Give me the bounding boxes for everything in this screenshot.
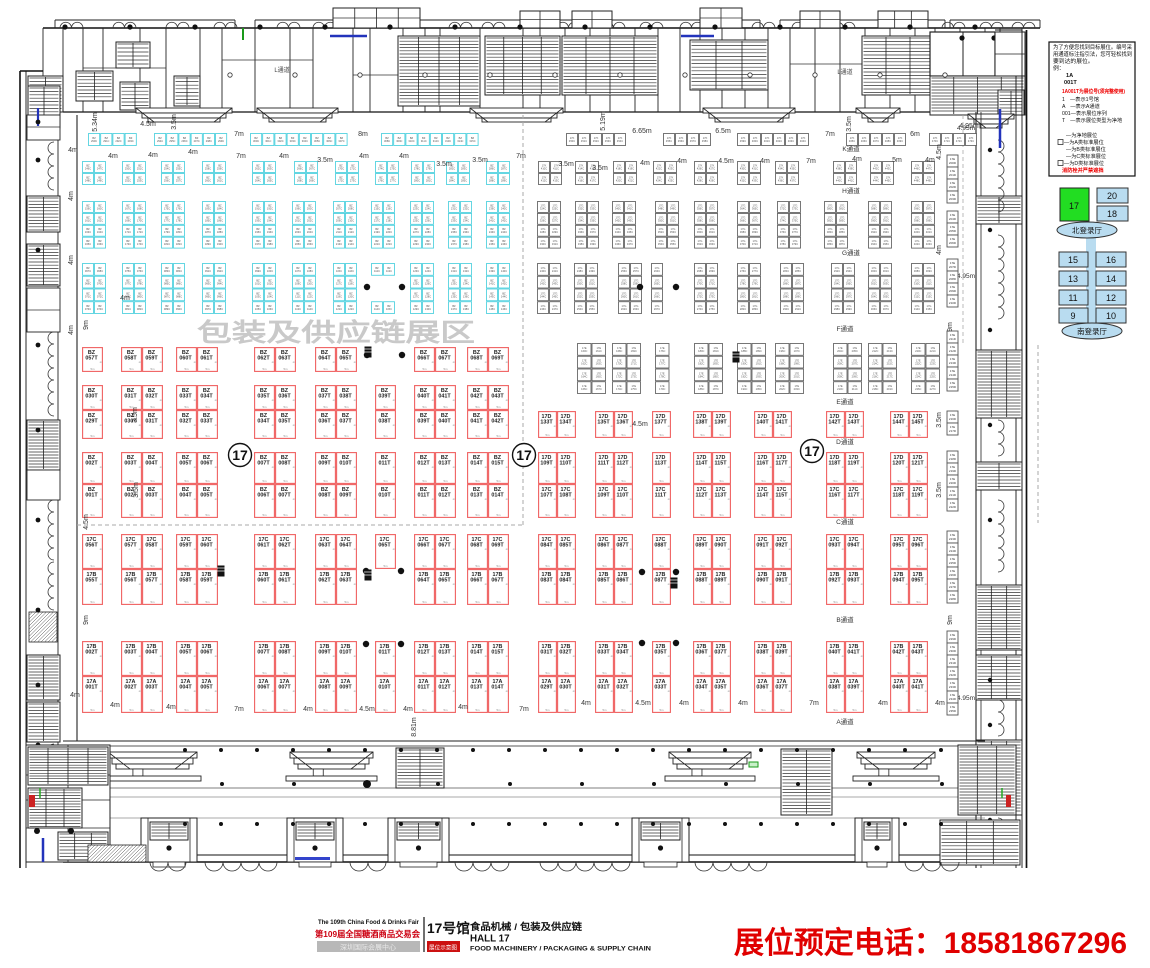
svg-text:129C: 129C <box>413 307 419 311</box>
svg-text:285C: 285C <box>795 269 801 273</box>
svg-text:270C: 270C <box>697 282 703 286</box>
svg-text:121C: 121C <box>336 307 342 311</box>
svg-text:5m: 5m <box>660 433 665 437</box>
svg-text:220C: 220C <box>915 349 921 353</box>
svg-text:5m: 5m <box>185 405 190 409</box>
svg-text:—为D类标准展位: —为D类标准展位 <box>1064 159 1104 167</box>
svg-text:193C: 193C <box>756 374 762 378</box>
svg-text:099C: 099C <box>255 269 261 273</box>
svg-text:114T: 114T <box>696 460 709 466</box>
svg-text:5m: 5m <box>701 708 706 712</box>
svg-text:4m: 4m <box>935 700 945 707</box>
svg-text:315C: 315C <box>926 307 932 311</box>
svg-text:063T: 063T <box>318 542 331 548</box>
svg-text:311C: 311C <box>421 139 427 143</box>
svg-text:337C: 337C <box>590 230 596 234</box>
svg-text:436C: 436C <box>778 178 784 182</box>
svg-text:413C: 413C <box>553 178 559 182</box>
svg-text:239C: 239C <box>489 206 495 210</box>
svg-text:197C: 197C <box>794 349 800 353</box>
svg-text:426C: 426C <box>697 166 703 170</box>
svg-text:308C: 308C <box>384 139 390 143</box>
svg-text:113T: 113T <box>715 492 728 498</box>
svg-text:228C: 228C <box>425 230 431 234</box>
svg-text:5m: 5m <box>345 671 350 675</box>
svg-text:142C: 142C <box>501 282 507 286</box>
svg-text:5m: 5m <box>206 708 211 712</box>
svg-text:168C: 168C <box>616 349 622 353</box>
svg-text:067T: 067T <box>491 577 504 583</box>
svg-text:348C: 348C <box>658 206 664 210</box>
svg-text:208C: 208C <box>348 206 354 210</box>
svg-text:350C: 350C <box>658 218 664 222</box>
svg-text:4.5m: 4.5m <box>936 144 943 160</box>
svg-text:278C: 278C <box>414 166 420 170</box>
svg-text:7m: 7m <box>234 131 244 138</box>
svg-text:5m: 5m <box>185 367 190 371</box>
svg-text:096T: 096T <box>911 542 924 548</box>
svg-text:299C: 299C <box>218 139 224 143</box>
svg-text:312C: 312C <box>433 139 439 143</box>
svg-text:5m: 5m <box>444 671 449 675</box>
svg-text:195C: 195C <box>255 230 261 234</box>
svg-text:216D: 216D <box>949 417 957 421</box>
svg-text:015T: 015T <box>491 460 504 466</box>
svg-text:031T: 031T <box>597 684 610 690</box>
svg-text:17: 17 <box>1069 201 1079 211</box>
svg-text:11: 11 <box>1068 293 1077 303</box>
svg-text:176C: 176C <box>659 349 665 353</box>
svg-text:162C: 162C <box>581 362 587 366</box>
svg-text:389C: 389C <box>883 206 889 210</box>
svg-text:167C: 167C <box>125 206 131 210</box>
svg-text:092C: 092C <box>217 269 223 273</box>
svg-text:186C: 186C <box>217 218 223 222</box>
svg-text:355C: 355C <box>670 242 676 246</box>
svg-text:351C: 351C <box>670 218 676 222</box>
svg-text:280C: 280C <box>740 294 746 298</box>
svg-text:013T: 013T <box>470 684 483 690</box>
svg-text:309C: 309C <box>926 269 932 273</box>
svg-text:5m: 5m <box>565 513 570 517</box>
svg-text:270C: 270C <box>338 166 344 170</box>
svg-text:110C: 110C <box>307 282 313 286</box>
svg-text:5m: 5m <box>444 513 449 517</box>
svg-text:096C: 096C <box>217 294 223 298</box>
svg-text:4m: 4m <box>738 700 748 707</box>
svg-text:5m: 5m <box>263 600 268 604</box>
svg-text:082C: 082C <box>137 307 143 311</box>
svg-text:245C: 245C <box>489 242 495 246</box>
svg-text:5m: 5m <box>151 600 156 604</box>
svg-text:5m: 5m <box>91 367 96 371</box>
svg-text:401C: 401C <box>926 230 932 234</box>
svg-text:308C: 308C <box>914 269 920 273</box>
svg-text:464C: 464C <box>800 139 806 143</box>
svg-text:E通道: E通道 <box>836 397 854 406</box>
svg-text:259C: 259C <box>217 166 223 170</box>
svg-text:232D: 232D <box>949 673 957 677</box>
svg-text:—为B类标准展位: —为B类标准展位 <box>1066 145 1106 153</box>
svg-text:5m: 5m <box>185 600 190 604</box>
svg-text:5m: 5m <box>660 600 665 604</box>
svg-text:F通道: F通道 <box>837 324 854 333</box>
svg-text:250C: 250C <box>125 166 131 170</box>
svg-text:375C: 375C <box>792 218 798 222</box>
svg-text:007T: 007T <box>278 684 291 690</box>
svg-text:060T: 060T <box>179 355 192 361</box>
svg-text:5m: 5m <box>622 708 627 712</box>
svg-text:197C: 197C <box>255 242 261 246</box>
svg-text:136C: 136C <box>463 294 469 298</box>
svg-text:5m: 5m <box>853 671 858 675</box>
svg-text:5m: 5m <box>263 405 268 409</box>
svg-text:295C: 295C <box>846 282 852 286</box>
svg-text:449C: 449C <box>926 178 932 182</box>
svg-text:185C: 185C <box>205 218 211 222</box>
svg-text:5m: 5m <box>324 564 329 568</box>
svg-text:5m: 5m <box>284 405 289 409</box>
svg-text:201D: 201D <box>949 173 957 177</box>
svg-text:334C: 334C <box>578 218 584 222</box>
svg-text:460C: 460C <box>752 139 758 143</box>
svg-text:302C: 302C <box>871 282 877 286</box>
svg-text:5m: 5m <box>660 564 665 568</box>
svg-text:5m: 5m <box>384 671 389 675</box>
svg-text:437C: 437C <box>790 178 796 182</box>
svg-text:包装及供应链展区: 包装及供应链展区 <box>197 318 475 347</box>
svg-text:109T: 109T <box>597 492 610 498</box>
svg-text:3.5m: 3.5m <box>132 407 139 423</box>
svg-text:040T: 040T <box>892 684 905 690</box>
svg-text:033T: 033T <box>654 684 667 690</box>
svg-text:173C: 173C <box>631 374 637 378</box>
svg-text:063T: 063T <box>278 355 291 361</box>
svg-text:362C: 362C <box>697 242 703 246</box>
svg-text:274C: 274C <box>697 307 703 311</box>
svg-text:4m: 4m <box>148 152 158 159</box>
svg-text:135T: 135T <box>597 419 610 425</box>
svg-text:5m: 5m <box>622 564 627 568</box>
svg-text:230D: 230D <box>949 649 957 653</box>
svg-text:084T: 084T <box>540 542 553 548</box>
svg-text:064T: 064T <box>339 542 352 548</box>
svg-text:062T: 062T <box>318 577 331 583</box>
svg-text:369C: 369C <box>752 230 758 234</box>
svg-text:5m: 5m <box>263 367 268 371</box>
svg-text:120C: 120C <box>348 294 354 298</box>
svg-text:302C: 302C <box>277 139 283 143</box>
svg-text:200C: 200C <box>779 374 785 378</box>
svg-text:138T: 138T <box>695 419 708 425</box>
svg-text:9m: 9m <box>947 322 954 332</box>
svg-text:059T: 059T <box>179 542 192 548</box>
svg-text:400C: 400C <box>914 230 920 234</box>
svg-text:117T: 117T <box>776 460 789 466</box>
svg-text:5m: 5m <box>622 513 627 517</box>
svg-text:5m: 5m <box>720 600 725 604</box>
svg-text:263C: 263C <box>267 166 273 170</box>
svg-text:264C: 264C <box>255 178 261 182</box>
svg-text:7m: 7m <box>236 153 246 160</box>
svg-text:L通道: L通道 <box>837 68 852 76</box>
svg-text:160C: 160C <box>581 349 587 353</box>
svg-text:207D: 207D <box>949 265 957 269</box>
svg-text:414C: 414C <box>578 166 584 170</box>
svg-text:5m: 5m <box>476 600 481 604</box>
svg-text:084C: 084C <box>176 269 182 273</box>
svg-text:057T: 057T <box>124 542 137 548</box>
svg-text:058T: 058T <box>179 577 192 583</box>
svg-text:377C: 377C <box>792 230 798 234</box>
svg-text:229C: 229C <box>413 242 419 246</box>
svg-text:029T: 029T <box>85 418 98 424</box>
svg-text:—为净地展位: —为净地展位 <box>1066 131 1097 139</box>
svg-text:234C: 234C <box>463 218 469 222</box>
svg-text:5m: 5m <box>565 708 570 712</box>
svg-text:454C: 454C <box>617 139 623 143</box>
svg-text:301C: 301C <box>265 139 271 143</box>
svg-text:HALL 17: HALL 17 <box>470 934 510 945</box>
svg-text:343C: 343C <box>627 218 633 222</box>
svg-text:261C: 261C <box>633 294 639 298</box>
svg-text:217D: 217D <box>949 429 957 433</box>
svg-text:5m: 5m <box>324 405 329 409</box>
svg-text:382C: 382C <box>827 218 833 222</box>
svg-text:246C: 246C <box>540 307 546 311</box>
svg-text:The 109th China Food & Drinks: The 109th China Food & Drinks Fair <box>318 919 419 926</box>
svg-text:187C: 187C <box>205 230 211 234</box>
svg-text:195C: 195C <box>756 387 762 391</box>
svg-text:5m: 5m <box>853 564 858 568</box>
svg-text:078C: 078C <box>137 282 143 286</box>
svg-text:165C: 165C <box>596 374 602 378</box>
svg-text:5m: 5m <box>720 671 725 675</box>
svg-text:202D: 202D <box>949 185 957 189</box>
svg-text:309C: 309C <box>396 139 402 143</box>
svg-text:深圳国际会展中心: 深圳国际会展中心 <box>340 943 396 952</box>
svg-text:056T: 056T <box>85 542 98 548</box>
svg-text:014T: 014T <box>491 492 504 498</box>
svg-text:5m: 5m <box>284 600 289 604</box>
svg-text:198C: 198C <box>779 362 785 366</box>
svg-text:5m: 5m <box>622 600 627 604</box>
svg-text:5m: 5m <box>206 600 211 604</box>
svg-text:085T: 085T <box>559 542 572 548</box>
svg-text:445C: 445C <box>885 178 891 182</box>
svg-text:088C: 088C <box>176 294 182 298</box>
svg-text:307C: 307C <box>338 139 344 143</box>
svg-text:288C: 288C <box>489 178 495 182</box>
svg-text:225C: 225C <box>930 374 936 378</box>
svg-text:003T: 003T <box>145 492 158 498</box>
svg-text:169C: 169C <box>631 349 637 353</box>
svg-text:260C: 260C <box>205 178 211 182</box>
svg-text:102C: 102C <box>267 282 273 286</box>
svg-text:4.95m: 4.95m <box>959 123 979 130</box>
svg-text:240C: 240C <box>540 269 546 273</box>
svg-text:114C: 114C <box>374 307 380 311</box>
svg-text:087T: 087T <box>616 542 629 548</box>
svg-text:056T: 056T <box>124 577 137 583</box>
svg-text:448C: 448C <box>914 178 920 182</box>
svg-text:059T: 059T <box>200 577 213 583</box>
svg-text:339C: 339C <box>590 242 596 246</box>
svg-text:5m: 5m <box>263 434 268 438</box>
svg-text:5m: 5m <box>565 433 570 437</box>
svg-text:067C: 067C <box>85 269 91 273</box>
svg-text:5m: 5m <box>497 405 502 409</box>
svg-text:193C: 193C <box>255 218 261 222</box>
svg-text:327C: 327C <box>552 218 558 222</box>
svg-text:9m: 9m <box>947 615 954 625</box>
svg-text:4m: 4m <box>110 702 120 709</box>
svg-text:252C: 252C <box>125 178 131 182</box>
svg-text:214C: 214C <box>872 362 878 366</box>
svg-text:396C: 396C <box>914 206 920 210</box>
svg-text:034T: 034T <box>257 418 270 424</box>
svg-text:403C: 403C <box>926 242 932 246</box>
svg-text:298C: 298C <box>834 307 840 311</box>
svg-text:4m: 4m <box>677 158 687 165</box>
svg-text:4m: 4m <box>68 255 75 265</box>
svg-text:249C: 249C <box>97 178 103 182</box>
svg-text:224C: 224C <box>425 206 431 210</box>
svg-text:034T: 034T <box>616 649 629 655</box>
svg-text:272C: 272C <box>338 178 344 182</box>
svg-text:5m: 5m <box>834 600 839 604</box>
svg-text:432C: 432C <box>740 178 746 182</box>
svg-text:221C: 221C <box>930 349 936 353</box>
svg-text:012T: 012T <box>438 492 451 498</box>
svg-text:098C: 098C <box>217 307 223 311</box>
svg-text:014T: 014T <box>470 460 483 466</box>
svg-text:17: 17 <box>804 443 820 459</box>
svg-text:235D: 235D <box>949 709 957 713</box>
svg-text:074C: 074C <box>97 307 103 311</box>
svg-text:5.34m: 5.34m <box>92 112 99 132</box>
svg-text:B通道: B通道 <box>836 615 854 624</box>
svg-text:204C: 204C <box>307 230 313 234</box>
svg-text:5m: 5m <box>444 434 449 438</box>
svg-text:141C: 141C <box>489 282 495 286</box>
svg-text:5m: 5m <box>206 513 211 517</box>
svg-text:372C: 372C <box>780 206 786 210</box>
svg-text:424C: 424C <box>656 178 662 182</box>
svg-text:370C: 370C <box>740 242 746 246</box>
svg-text:107T: 107T <box>540 492 553 498</box>
svg-text:D通道: D通道 <box>836 437 854 446</box>
svg-text:172C: 172C <box>137 230 143 234</box>
svg-text:388C: 388C <box>871 206 877 210</box>
svg-text:3.5m: 3.5m <box>592 165 608 172</box>
svg-text:055T: 055T <box>85 577 98 583</box>
svg-text:178C: 178C <box>176 218 182 222</box>
svg-text:366C: 366C <box>740 218 746 222</box>
svg-text:335C: 335C <box>590 218 596 222</box>
svg-text:164C: 164C <box>581 374 587 378</box>
svg-text:3.5m: 3.5m <box>936 412 943 428</box>
svg-text:5m: 5m <box>898 671 903 675</box>
svg-text:A通道: A通道 <box>836 717 854 726</box>
svg-text:081C: 081C <box>125 307 131 311</box>
svg-text:224D: 224D <box>949 549 957 553</box>
svg-text:267C: 267C <box>309 166 315 170</box>
svg-text:252C: 252C <box>577 294 583 298</box>
svg-text:171C: 171C <box>125 230 131 234</box>
svg-text:066T: 066T <box>417 355 430 361</box>
svg-text:438C: 438C <box>836 166 842 170</box>
svg-text:206C: 206C <box>837 362 843 366</box>
svg-text:325C: 325C <box>552 206 558 210</box>
svg-text:230C: 230C <box>425 242 431 246</box>
svg-text:107C: 107C <box>295 269 301 273</box>
svg-text:058T: 058T <box>124 355 137 361</box>
svg-text:消防栓并严禁遮挡: 消防栓并严禁遮挡 <box>1062 166 1104 174</box>
svg-text:271C: 271C <box>350 166 356 170</box>
svg-text:005T: 005T <box>200 684 213 690</box>
svg-text:457C: 457C <box>690 139 696 143</box>
svg-text:292C: 292C <box>834 269 840 273</box>
svg-text:5m: 5m <box>476 564 481 568</box>
svg-text:232C: 232C <box>463 206 469 210</box>
svg-text:177C: 177C <box>164 218 170 222</box>
svg-text:287C: 287C <box>501 166 507 170</box>
svg-text:205C: 205C <box>852 349 858 353</box>
svg-text:456C: 456C <box>678 139 684 143</box>
svg-text:159C: 159C <box>85 206 91 210</box>
svg-text:012T: 012T <box>417 460 430 466</box>
svg-text:223D: 223D <box>949 537 957 541</box>
svg-text:173C: 173C <box>125 242 131 246</box>
svg-text:307C: 307C <box>883 307 889 311</box>
svg-text:246C: 246C <box>501 242 507 246</box>
svg-text:223C: 223C <box>930 362 936 366</box>
svg-text:097C: 097C <box>205 307 211 311</box>
svg-text:242C: 242C <box>501 218 507 222</box>
svg-text:5m: 5m <box>444 405 449 409</box>
svg-text:062T: 062T <box>257 355 270 361</box>
svg-text:5m: 5m <box>345 367 350 371</box>
svg-text:061T: 061T <box>278 577 291 583</box>
svg-text:5m: 5m <box>130 513 135 517</box>
svg-text:007T: 007T <box>257 460 270 466</box>
svg-text:5m: 5m <box>603 513 608 517</box>
svg-text:061T: 061T <box>257 542 270 548</box>
svg-text:427C: 427C <box>709 166 715 170</box>
svg-text:068T: 068T <box>470 542 483 548</box>
svg-text:264C: 264C <box>654 269 660 273</box>
svg-text:041T: 041T <box>438 393 451 399</box>
svg-text:266C: 266C <box>654 294 660 298</box>
svg-text:077C: 077C <box>125 282 131 286</box>
svg-text:4m: 4m <box>458 704 468 711</box>
svg-text:5m: 5m <box>701 564 706 568</box>
svg-text:441C: 441C <box>848 178 854 182</box>
svg-text:175C: 175C <box>631 387 637 391</box>
svg-text:124C: 124C <box>425 269 431 273</box>
svg-text:5m: 5m <box>917 708 922 712</box>
svg-text:174C: 174C <box>616 387 622 391</box>
svg-text:175C: 175C <box>164 206 170 210</box>
svg-text:258C: 258C <box>621 282 627 286</box>
svg-text:086C: 086C <box>176 282 182 286</box>
svg-text:143T: 143T <box>847 419 860 425</box>
svg-text:231C: 231C <box>451 206 457 210</box>
svg-text:289C: 289C <box>795 294 801 298</box>
svg-text:065T: 065T <box>339 355 352 361</box>
svg-text:067T: 067T <box>438 355 451 361</box>
